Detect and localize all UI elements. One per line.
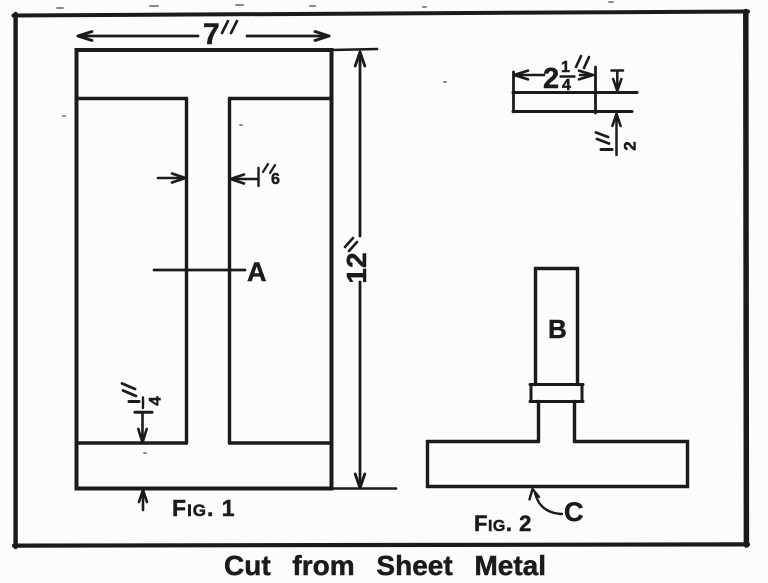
svg-text:6: 6 [271,171,280,188]
svg-text:FIG. 1: FIG. 1 [172,495,236,521]
svg-text:4: 4 [562,77,571,94]
svg-text:FIG. 2: FIG. 2 [474,511,532,536]
svg-text:1: 1 [561,59,570,76]
svg-text:Cut from Sheet Metal: Cut from Sheet Metal [224,550,546,581]
svg-text:2: 2 [621,141,640,150]
svg-text:4: 4 [146,396,165,406]
svg-text:A: A [247,257,267,287]
svg-text:C: C [564,497,584,527]
svg-text:12: 12 [341,252,372,283]
svg-text:B: B [548,314,567,344]
svg-text:7: 7 [203,18,220,51]
svg-text:2: 2 [543,63,559,95]
